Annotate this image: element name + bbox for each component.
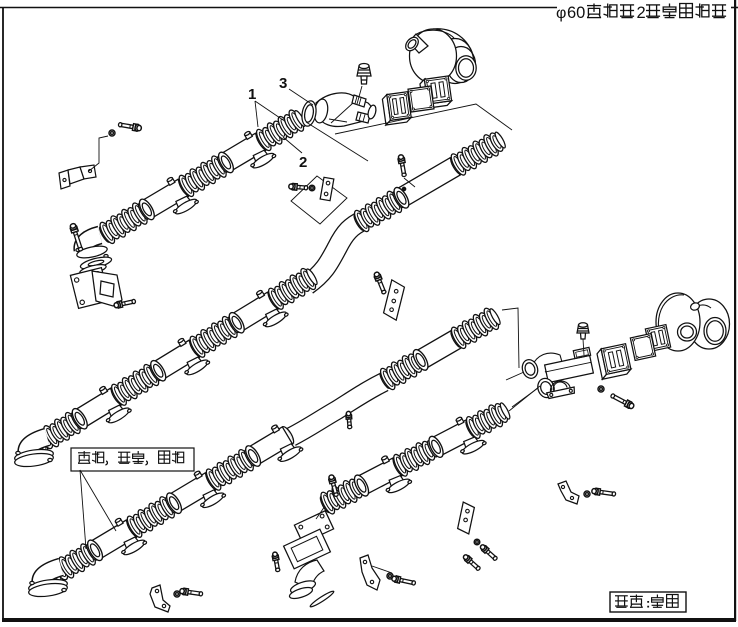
svg-text:2: 2 bbox=[637, 4, 646, 22]
svg-text:φ: φ bbox=[556, 5, 566, 22]
svg-text:2: 2 bbox=[299, 154, 307, 171]
svg-text:60: 60 bbox=[567, 4, 585, 22]
svg-text:3: 3 bbox=[279, 75, 287, 92]
svg-text::: : bbox=[646, 596, 650, 611]
svg-text:1: 1 bbox=[248, 86, 256, 103]
